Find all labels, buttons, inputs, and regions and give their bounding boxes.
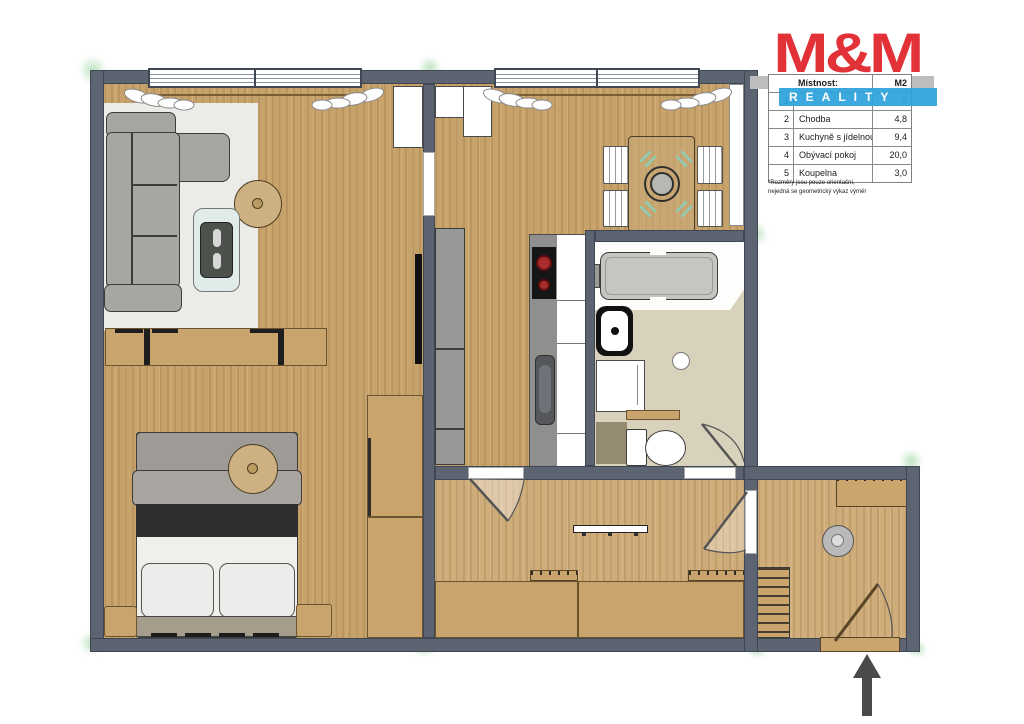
room-name: Obývací pokoj	[794, 147, 872, 164]
dining-chair	[697, 146, 723, 184]
kitchen-corner-cabinet	[463, 86, 492, 137]
doorway-kitchen-hall	[468, 467, 524, 479]
room-number: 2	[769, 111, 794, 128]
room-name: Chodba	[794, 111, 872, 128]
entry-stool	[822, 525, 854, 557]
coffee-table	[193, 208, 240, 292]
footnote-line-1: *Rozměry jsou pouze orientační,	[768, 179, 866, 188]
washer-door-line	[637, 365, 639, 405]
counter-seam	[557, 300, 587, 301]
bathroom-shelf	[626, 410, 680, 420]
sideboard-accent	[115, 329, 143, 333]
wall-left	[90, 70, 104, 652]
window-kitchen	[494, 68, 700, 88]
sideboard-divider	[144, 329, 150, 365]
legend-row-3: 3 Kuchyně s jídelnou 9,4	[769, 128, 911, 146]
side-table-center	[252, 198, 263, 209]
coffee-table-tray	[200, 222, 233, 278]
pillow-left	[141, 563, 214, 618]
counter-seam	[557, 343, 587, 344]
coat-rack	[836, 476, 913, 507]
wall-bathroom-left	[585, 230, 595, 466]
bathtub-notch	[650, 250, 666, 255]
washing-machine	[596, 360, 645, 412]
wall-right-main	[744, 70, 758, 652]
room-area: 3,0	[872, 165, 911, 182]
wardrobe-handle	[368, 438, 371, 516]
kitchen-corner-cabinet	[435, 86, 465, 118]
radiator-panel	[729, 84, 744, 226]
sink-basin	[539, 365, 551, 413]
bathtub-inner	[605, 257, 713, 295]
wardrobe-divider	[368, 516, 422, 518]
wall-bottom	[90, 638, 920, 652]
sofa-cushion-line	[131, 235, 177, 237]
room-area: 9,4	[872, 129, 911, 146]
room-area: 20,0	[872, 147, 911, 164]
hallway-wardrobe-left	[435, 581, 578, 638]
nightstand-right	[296, 604, 332, 637]
sofa-armrest-bottom	[104, 284, 182, 312]
floorplan-canvas: Místnost: M2 1 3 2 Chodba 4,8 3 Kuchyně …	[0, 0, 1024, 724]
bedroom-wardrobe	[367, 395, 423, 638]
footnote-line-2: nejedná se geometrický výkaz výměr	[768, 188, 866, 197]
sofa-body	[106, 132, 180, 288]
legend-row-4: 4 Obývací pokoj 20,0	[769, 146, 911, 164]
doorway-hall-entry	[745, 490, 757, 554]
bed-dark-runner	[136, 504, 298, 537]
doorway-living-kitchen	[423, 152, 435, 216]
entry-stool-center	[831, 534, 844, 547]
side-table-center	[247, 463, 258, 474]
sideboard-accent	[152, 329, 178, 333]
room-number: 4	[769, 147, 794, 164]
bathtub	[600, 252, 718, 300]
unit-divider	[436, 348, 464, 350]
shelf-feet	[582, 533, 640, 536]
doorway-bathroom	[684, 467, 736, 479]
window-mullion	[254, 70, 256, 86]
mm-reality-banner: REALITY	[779, 88, 937, 106]
kitchen-counter-run	[529, 234, 586, 467]
burner	[536, 255, 552, 271]
room-area: 4,8	[872, 111, 911, 128]
wall-entry-right	[906, 466, 920, 652]
room-name: Kuchyně s jídelnou	[794, 129, 872, 146]
headboard-feet	[151, 633, 283, 637]
toilet-tank	[626, 429, 647, 466]
hallway-wardrobe-right	[578, 581, 744, 638]
kitchen-tall-units	[435, 228, 465, 465]
legend-row-2: 2 Chodba 4,8	[769, 110, 911, 128]
shoe-rack	[757, 567, 790, 638]
sideboard-accent	[250, 329, 278, 333]
bed-headboard	[136, 616, 298, 637]
bath-mat	[596, 422, 627, 464]
stove-cooktop	[532, 247, 556, 299]
mm-reality-logo: M&M	[759, 22, 936, 84]
floor-drain	[672, 352, 690, 370]
dining-chair	[603, 190, 629, 227]
dining-chair	[697, 190, 723, 227]
room-number: 3	[769, 129, 794, 146]
nightstand-left	[104, 606, 137, 637]
tv-on-wall	[415, 254, 422, 364]
wall-mirror-shelf	[573, 525, 648, 533]
entrance-threshold	[820, 637, 900, 652]
dining-table	[628, 136, 695, 232]
sofa-backrest-line	[131, 133, 133, 287]
wall-entry-top	[744, 466, 920, 480]
table-centerpiece-inner	[650, 172, 674, 196]
bathroom-sink	[596, 306, 633, 356]
round-side-table-bedroom	[228, 444, 278, 494]
entrance-arrow-icon	[853, 654, 881, 716]
remote-control	[213, 253, 221, 269]
remote-control	[213, 229, 221, 247]
unit-divider	[436, 428, 464, 430]
round-side-table-living	[234, 180, 282, 228]
sideboard	[105, 328, 327, 366]
burner	[538, 279, 550, 291]
wall-bathroom-top	[595, 230, 744, 242]
coat-rail	[688, 570, 745, 581]
coat-rail	[530, 570, 578, 581]
toilet-bowl	[645, 430, 686, 466]
window-mullion	[596, 70, 598, 86]
bathtub-notch	[650, 297, 666, 302]
sofa-cushion-line	[131, 184, 177, 186]
window-living	[148, 68, 362, 88]
kitchen-sink	[535, 355, 555, 425]
sink-drain	[611, 327, 619, 335]
sideboard-divider	[278, 329, 284, 365]
pillow-right	[219, 563, 295, 618]
counter-seam	[557, 433, 587, 434]
living-cabinet	[393, 86, 423, 148]
dining-chair	[603, 146, 629, 184]
legend-footnote: *Rozměry jsou pouze orientační, nejedná …	[768, 179, 866, 197]
